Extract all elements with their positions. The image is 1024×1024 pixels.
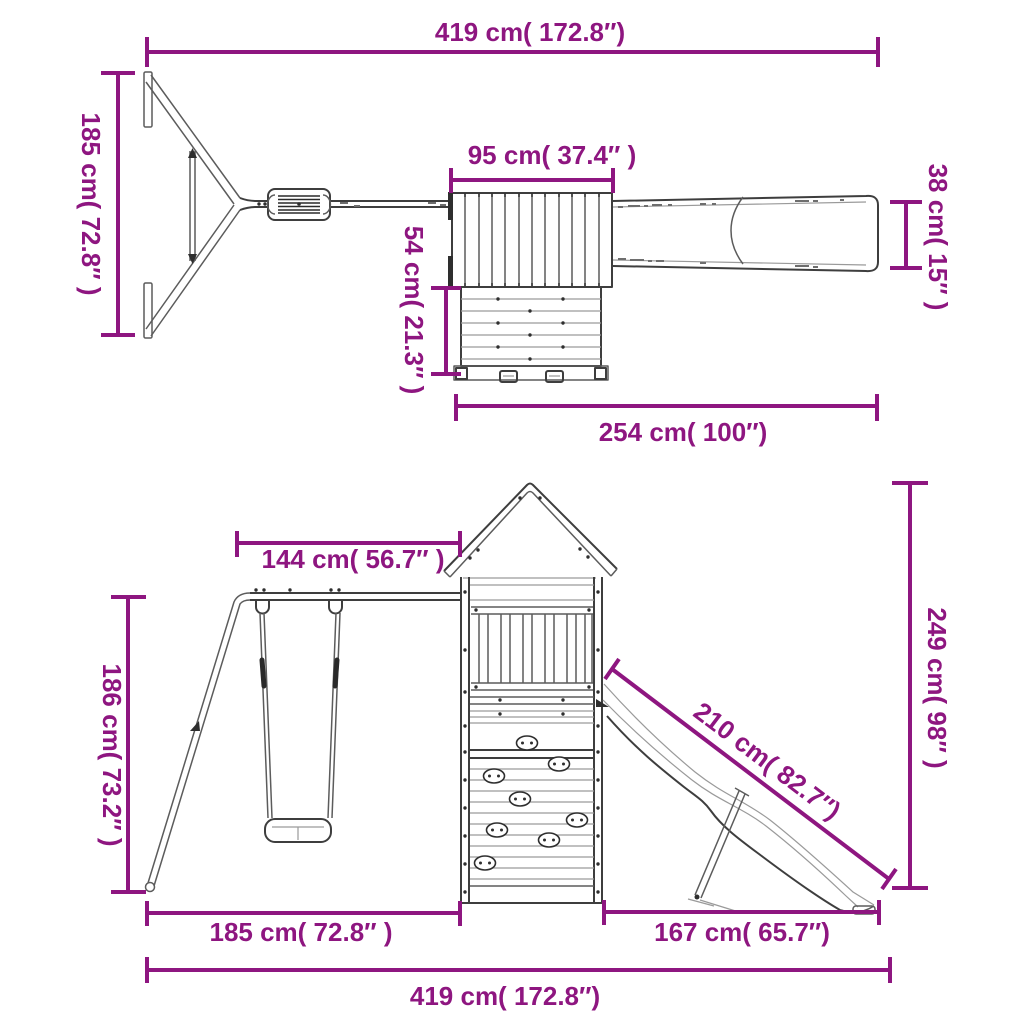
beam-clamp-upper: [448, 192, 453, 220]
dim-label-overall-height: 249 cm( 98″ ): [922, 607, 952, 768]
dim-label-roof-width: 95 cm( 37.4″ ): [468, 140, 637, 170]
dim-roof-width: 95 cm( 37.4″ ): [451, 140, 636, 193]
swing-leg: [148, 593, 250, 886]
tower-top-rails: [470, 585, 594, 600]
climbing-hold: [517, 736, 538, 750]
top-view-roof: [448, 192, 612, 287]
strut-foot-dot: [695, 895, 700, 900]
wall-planks: [461, 299, 601, 359]
balusters: [479, 614, 592, 683]
climbing-hold: [539, 833, 560, 847]
dim-overall-height: 249 cm( 98″ ): [892, 483, 952, 888]
swing-ropes: [260, 613, 340, 818]
dim-beam-length: 144 cm( 56.7″ ): [237, 531, 460, 574]
swing-foot-top: [144, 72, 152, 127]
dim-label-beam-length: 144 cm( 56.7″ ): [261, 544, 444, 574]
dim-bottom-overall-width: 419 cm( 172.8″): [147, 957, 890, 1011]
beam-clamp-lower: [448, 256, 453, 286]
slide-wave-curve: [731, 197, 743, 264]
swing-crossbar: [190, 151, 195, 261]
swing-hangers: [256, 600, 342, 614]
base-foot-right: [595, 368, 606, 379]
dim-slide-width: 38 cm( 15″ ): [890, 164, 953, 311]
climbing-hold: [484, 769, 505, 783]
dim-line: [431, 288, 461, 374]
climbing-hold: [510, 792, 531, 806]
leg-arrow-mark: [190, 721, 200, 731]
diagram-svg: 419 cm( 172.8″) 185 cm( 72.8″ ) 95 cm( 3…: [0, 0, 1024, 1024]
top-view-swing-seat: [268, 189, 331, 220]
climbing-hold: [475, 856, 496, 870]
dim-line: [451, 168, 613, 193]
climbing-hold: [549, 757, 570, 771]
dim-label-climbing-wall-depth: 54 cm( 21.3″ ): [399, 226, 429, 395]
base-plate: [454, 366, 608, 380]
dim-label-tower-slide-length: 254 cm( 100″): [599, 417, 768, 447]
dim-label-top-overall-width: 419 cm( 172.8″): [435, 17, 625, 47]
beam-hatch-marks: [340, 203, 446, 206]
dim-label-slide-footprint: 167 cm( 65.7″): [654, 917, 830, 947]
top-view-climbing-wall: [454, 287, 608, 382]
swing-legs: [146, 75, 240, 336]
dim-line: [147, 957, 890, 983]
deck-dots: [500, 700, 563, 714]
dim-swing-frame-height: 186 cm( 73.2″ ): [97, 597, 146, 892]
dim-slide-length: 210 cm( 82.7″): [605, 659, 896, 889]
swing-foot-bottom: [144, 283, 152, 338]
swing-beam: [250, 593, 461, 600]
climbing-hold: [567, 813, 588, 827]
wall-dots: [498, 299, 563, 359]
slide-support-strut: [695, 788, 749, 898]
swing-seat-lines: [272, 827, 324, 840]
dim-label-swing-frame-height: 186 cm( 73.2″ ): [97, 663, 127, 846]
dim-line: [605, 659, 896, 889]
roof-planks: [465, 193, 599, 287]
dim-tower-slide-length: 254 cm( 100″): [456, 394, 877, 447]
front-view-drawing: [146, 484, 876, 915]
dim-line: [890, 202, 922, 268]
front-view-swing-set: [146, 590, 462, 892]
dim-label-slide-width: 38 cm( 15″ ): [923, 164, 953, 311]
dim-swing-frame-width: 185 cm( 72.8″ ): [147, 901, 460, 947]
seat-center-dot: [297, 202, 301, 206]
dimension-diagram: 419 cm( 172.8″) 185 cm( 72.8″ ) 95 cm( 3…: [0, 0, 1024, 1024]
wall-top-rails: [470, 750, 594, 758]
swing-leg-foot: [146, 883, 155, 892]
dim-top-overall-width: 419 cm( 172.8″): [147, 17, 878, 67]
top-view-slide: [613, 196, 878, 271]
slide-outline-top-view: [613, 196, 878, 271]
dim-swing-frame-depth: 185 cm( 72.8″ ): [76, 73, 135, 335]
climbing-hold: [487, 823, 508, 837]
front-view-roof: [444, 484, 617, 579]
roof-bolt-dots: [470, 498, 588, 558]
deck-edge: [470, 697, 594, 704]
top-view-drawing: [144, 72, 878, 382]
dim-label-swing-frame-depth: 185 cm( 72.8″ ): [76, 112, 106, 295]
dim-label-bottom-overall-width: 419 cm( 172.8″): [410, 981, 600, 1011]
dim-slide-footprint: 167 cm( 65.7″): [604, 900, 879, 947]
roof-inner: [444, 492, 617, 578]
deck-planks: [470, 711, 594, 723]
front-view-climbing-holds: [475, 736, 588, 870]
rope-adjusters: [262, 660, 337, 686]
dim-label-slide-length: 210 cm( 82.7″): [688, 696, 846, 826]
slide-inner-edges: [613, 202, 866, 265]
dim-label-swing-frame-width: 185 cm( 72.8″ ): [209, 917, 392, 947]
